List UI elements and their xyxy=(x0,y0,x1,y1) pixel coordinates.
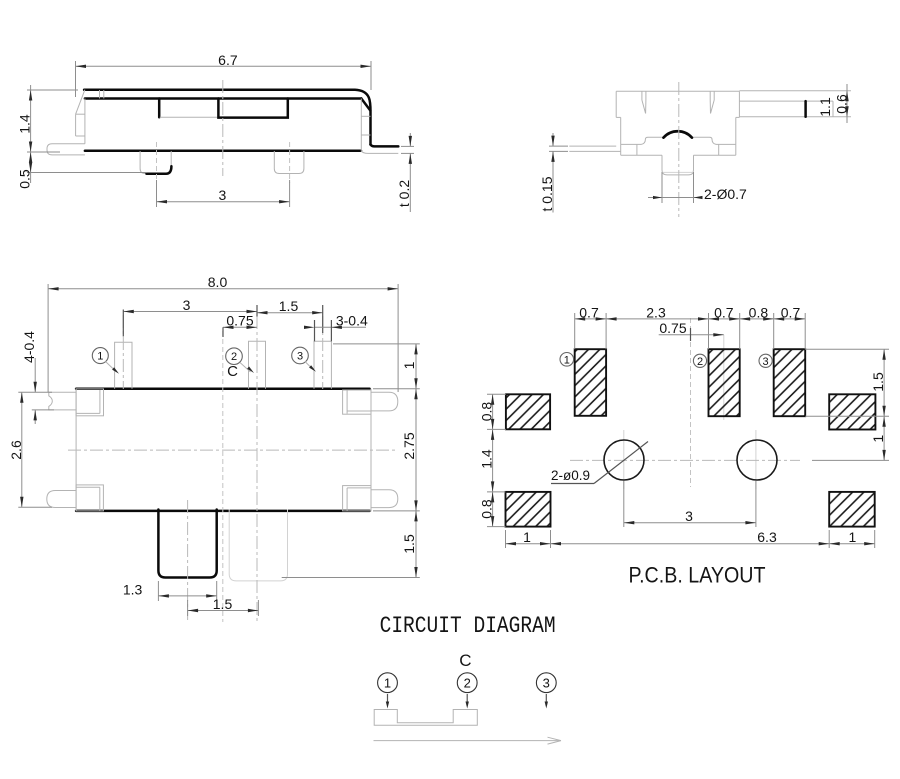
svg-text:1: 1 xyxy=(870,435,886,443)
svg-text:1.3: 1.3 xyxy=(123,581,143,597)
svg-text:C: C xyxy=(227,363,238,380)
svg-text:C: C xyxy=(459,651,471,670)
svg-text:t 0.2: t 0.2 xyxy=(396,180,412,207)
svg-text:0.8: 0.8 xyxy=(749,304,769,320)
svg-text:0.7: 0.7 xyxy=(714,304,734,320)
svg-text:2.75: 2.75 xyxy=(401,432,417,459)
svg-text:1: 1 xyxy=(564,354,570,366)
svg-text:3: 3 xyxy=(297,351,303,363)
svg-text:0.8: 0.8 xyxy=(479,499,495,519)
svg-text:1.5: 1.5 xyxy=(401,534,417,554)
svg-text:0.7: 0.7 xyxy=(781,304,801,320)
svg-text:1.1: 1.1 xyxy=(817,97,833,117)
svg-text:3: 3 xyxy=(543,675,550,690)
svg-text:0.5: 0.5 xyxy=(16,169,32,189)
svg-text:1.5: 1.5 xyxy=(279,298,299,314)
svg-text:0.75: 0.75 xyxy=(659,320,686,336)
svg-text:4-0.4: 4-0.4 xyxy=(21,331,37,363)
svg-text:8.0: 8.0 xyxy=(208,274,228,290)
svg-text:CIRCUIT DIAGRAM: CIRCUIT DIAGRAM xyxy=(380,613,556,639)
svg-text:1: 1 xyxy=(523,529,531,545)
svg-text:0.8: 0.8 xyxy=(479,402,495,422)
svg-text:2-Ø0.7: 2-Ø0.7 xyxy=(704,186,747,202)
svg-text:3: 3 xyxy=(219,187,227,203)
svg-text:2: 2 xyxy=(697,356,703,368)
svg-text:1: 1 xyxy=(849,529,857,545)
svg-text:t 0.15: t 0.15 xyxy=(539,176,555,211)
svg-text:1.5: 1.5 xyxy=(213,596,233,612)
svg-text:0.6: 0.6 xyxy=(834,94,850,114)
svg-text:P.C.B. LAYOUT: P.C.B. LAYOUT xyxy=(629,563,766,588)
svg-text:6.3: 6.3 xyxy=(757,529,777,545)
svg-text:2.6: 2.6 xyxy=(8,440,24,460)
svg-text:6.7: 6.7 xyxy=(218,52,238,68)
svg-text:1.4: 1.4 xyxy=(16,114,32,134)
svg-text:2.3: 2.3 xyxy=(646,304,666,320)
svg-text:1.5: 1.5 xyxy=(870,372,886,392)
svg-text:1.4: 1.4 xyxy=(479,449,495,469)
svg-text:3: 3 xyxy=(763,356,769,368)
svg-text:3: 3 xyxy=(685,508,693,524)
svg-text:3: 3 xyxy=(183,297,191,313)
svg-text:0.7: 0.7 xyxy=(579,304,599,320)
svg-text:0.75: 0.75 xyxy=(226,313,253,329)
svg-text:1: 1 xyxy=(401,361,417,369)
svg-text:1: 1 xyxy=(97,351,103,363)
svg-text:2: 2 xyxy=(464,675,471,690)
svg-text:2-ø0.9: 2-ø0.9 xyxy=(551,468,590,483)
svg-text:1: 1 xyxy=(384,675,391,690)
svg-text:2: 2 xyxy=(231,351,237,363)
svg-text:3-0.4: 3-0.4 xyxy=(336,313,368,329)
